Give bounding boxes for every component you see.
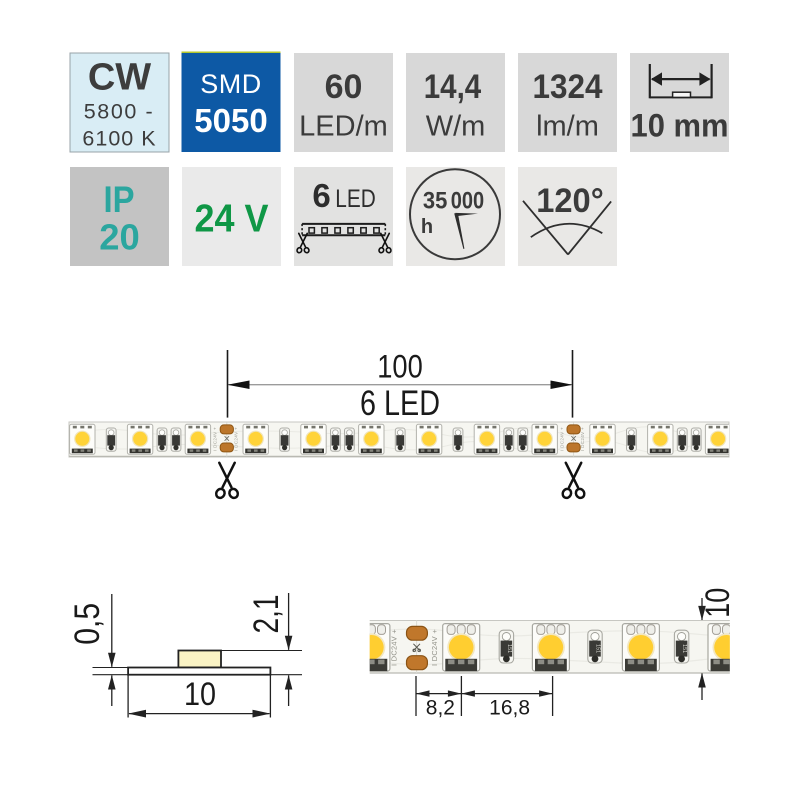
svg-text:CW: CW xyxy=(88,57,151,99)
svg-text:6: 6 xyxy=(312,177,330,214)
svg-text:5050: 5050 xyxy=(194,102,267,139)
svg-text:LED: LED xyxy=(335,185,376,213)
svg-text:14,4: 14,4 xyxy=(424,68,482,106)
svg-text:000: 000 xyxy=(451,187,484,214)
svg-text:151: 151 xyxy=(681,644,687,653)
svg-text:120°: 120° xyxy=(536,182,604,220)
svg-text:SMD: SMD xyxy=(200,69,262,99)
svg-text:10 mm: 10 mm xyxy=(631,108,729,144)
svg-text:60: 60 xyxy=(325,68,363,106)
svg-text:0,5: 0,5 xyxy=(68,603,107,645)
svg-text:10: 10 xyxy=(184,676,216,712)
svg-text:IP: IP xyxy=(104,179,135,220)
svg-text:6 LED: 6 LED xyxy=(360,384,440,423)
svg-text:151: 151 xyxy=(594,644,600,653)
svg-text:I DC24V +: I DC24V + xyxy=(389,629,398,666)
svg-text:h: h xyxy=(421,216,433,238)
svg-text:35: 35 xyxy=(423,187,448,214)
svg-text:16,8: 16,8 xyxy=(489,697,530,720)
svg-text:lm/m: lm/m xyxy=(536,110,599,142)
svg-text:I DC24V +: I DC24V + xyxy=(233,427,238,451)
svg-text:100: 100 xyxy=(377,349,423,385)
svg-text:I DC24V +: I DC24V + xyxy=(559,427,564,451)
svg-text:6100 K: 6100 K xyxy=(82,126,156,150)
svg-text:20: 20 xyxy=(99,216,140,257)
svg-text:24 V: 24 V xyxy=(195,198,269,241)
svg-text:LED/m: LED/m xyxy=(299,110,388,142)
svg-text:10: 10 xyxy=(699,588,737,618)
svg-text:I DC24V +: I DC24V + xyxy=(430,629,439,666)
svg-text:1324: 1324 xyxy=(533,68,603,106)
svg-text:2,1: 2,1 xyxy=(247,595,286,634)
svg-text:W/m: W/m xyxy=(426,110,486,142)
svg-text:151: 151 xyxy=(506,644,512,653)
svg-text:I DC24V +: I DC24V + xyxy=(580,427,585,451)
svg-text:8,2: 8,2 xyxy=(426,697,455,720)
svg-text:5800 -: 5800 - xyxy=(84,99,155,123)
svg-text:I DC24V +: I DC24V + xyxy=(213,427,218,451)
